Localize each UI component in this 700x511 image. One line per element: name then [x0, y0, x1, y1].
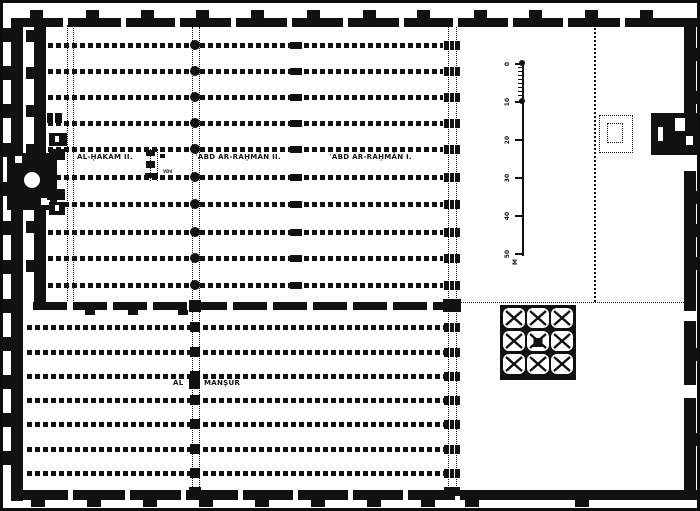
buttress [417, 10, 430, 18]
courtyard-fountain [500, 305, 576, 380]
pier-cluster [444, 372, 460, 381]
arcade-row [48, 256, 443, 261]
scale-bar-minor-tick [518, 67, 522, 68]
pier [189, 377, 200, 389]
door-gap [620, 18, 625, 27]
pier-cluster [444, 323, 460, 332]
arcade-row [48, 69, 443, 74]
buttress [585, 10, 598, 18]
pier [190, 280, 200, 290]
buttress [141, 10, 154, 18]
pier-cluster [444, 348, 460, 357]
buttress [465, 500, 479, 507]
door-gap [403, 490, 408, 500]
minaret-footprint-inner [607, 123, 623, 143]
pier-cluster [444, 420, 460, 429]
buttress [196, 10, 209, 18]
old-qibla-mark [290, 201, 302, 208]
gate-passage [675, 118, 685, 131]
scale-bar-minor-tick [518, 87, 522, 88]
buttress [86, 10, 99, 18]
door-gap [121, 18, 126, 27]
buttress [3, 66, 11, 80]
arcade-row [27, 447, 447, 452]
pier-cluster [444, 67, 460, 76]
scale-bar-label: 20 [504, 133, 512, 147]
door-gap [175, 18, 180, 27]
buttress [363, 10, 376, 18]
buttress [3, 413, 11, 427]
mihrab-niche [24, 172, 40, 188]
door-gap [399, 18, 404, 27]
gate-passage [658, 127, 663, 141]
door-gap [348, 490, 353, 500]
chamber-gap [55, 205, 59, 211]
buttress [696, 91, 700, 104]
wall-east [684, 171, 696, 311]
buttress [3, 451, 11, 465]
scale-bar-unit-label: M [512, 255, 520, 269]
scale-bar-label: 40 [504, 209, 512, 223]
pier [190, 419, 200, 429]
lantern-pier [146, 161, 155, 168]
scale-bar-dot [519, 60, 525, 66]
door-gap [125, 490, 130, 500]
old-qibla-mark [290, 94, 302, 101]
door-gap [231, 18, 236, 27]
pier [190, 118, 200, 128]
arcade-row [48, 175, 443, 180]
chamber-gap [55, 136, 59, 142]
pier-cluster [444, 228, 460, 237]
buttress [696, 257, 700, 270]
buttress [640, 10, 653, 18]
buttress [696, 191, 700, 204]
door-gap [238, 490, 243, 500]
buttress [696, 48, 700, 61]
pier [190, 395, 200, 405]
courtyard-boundary-dotted [458, 302, 696, 303]
label-al-hakam-ii: AL-ḤAKAM II. [77, 153, 133, 161]
buttress [696, 348, 700, 361]
buttress [421, 500, 435, 507]
scale-bar-label: 30 [504, 171, 512, 185]
lantern-pier [160, 154, 165, 158]
buttress [367, 500, 381, 507]
pier-junction [443, 299, 461, 312]
buttress [3, 375, 11, 389]
wall-mark [47, 113, 53, 123]
door-gap [181, 490, 186, 500]
label-al-mansur-part2: MANṢŪR [204, 379, 240, 387]
arcade-row [27, 325, 447, 330]
pier-cluster [444, 254, 460, 263]
wall-east [684, 18, 696, 113]
scale-bar-tick [515, 177, 523, 179]
arcade-row [27, 350, 447, 355]
old-qibla-mark [290, 68, 302, 75]
pier [190, 40, 200, 50]
buttress [3, 337, 11, 351]
wall-south [11, 490, 697, 500]
pier-cluster [444, 469, 460, 478]
door-gap [563, 18, 568, 27]
door-stub [128, 310, 138, 315]
pier [190, 172, 200, 182]
old-qibla-mark [290, 255, 302, 262]
buttress [26, 30, 34, 42]
arcade-row [27, 471, 447, 476]
pier [190, 199, 200, 209]
scale-bar-label: 0 [504, 57, 512, 71]
pier-cluster [444, 445, 460, 454]
pier-junction [189, 487, 201, 495]
door-gap [453, 18, 458, 27]
pier-junction [189, 300, 201, 312]
pier-cluster [444, 173, 460, 182]
courtyard-axis-dotted [594, 25, 596, 302]
label-al-mansur-part1: AL [173, 379, 183, 387]
floor-plan-figure: 01020304050M VDV AL-ḤAKAM II. ʿABD AR-RA… [0, 0, 700, 511]
wall-east [684, 321, 696, 385]
arcade-row [48, 43, 443, 48]
scale-bar-tick [515, 139, 523, 141]
buttress [307, 10, 320, 18]
scale-bar-minor-tick [518, 75, 522, 76]
scale-bar-minor-tick [518, 91, 522, 92]
buttress [87, 500, 101, 507]
arcade-row [48, 95, 443, 100]
pier [190, 66, 200, 76]
pier-cluster [444, 281, 460, 290]
wall-mark [55, 113, 62, 123]
label-abd-ar-rahman-i: ʿABD AR-RAḤMĀN I. [329, 153, 412, 161]
buttress [311, 500, 325, 507]
wall-west [11, 18, 23, 501]
buttress [3, 221, 11, 235]
buttress [26, 67, 34, 79]
fountain-drawing [500, 305, 576, 380]
arcade-row [48, 121, 443, 126]
phase-line-dotted [73, 25, 74, 301]
door-gap [343, 18, 348, 27]
buttress [575, 500, 589, 507]
treasury-chamber [47, 189, 65, 200]
pier [190, 253, 200, 263]
label-abd-ar-rahman-ii: ʿABD AR-RAḤMĀN II. [195, 153, 281, 161]
pier-junction [444, 487, 460, 496]
treasury-chamber [49, 149, 65, 160]
pier-cluster [444, 200, 460, 209]
pier [190, 227, 200, 237]
pier [190, 468, 200, 478]
pier-cluster [444, 145, 460, 154]
buttress [143, 500, 157, 507]
arcade-row [48, 202, 443, 207]
lantern-pier [146, 150, 155, 156]
wall-east [684, 398, 696, 490]
gate-passage [686, 136, 693, 145]
buttress [251, 10, 264, 18]
door-gap [293, 490, 298, 500]
buttress [26, 221, 34, 233]
old-qibla-mark [290, 282, 302, 289]
buttress [31, 500, 45, 507]
scale-bar-tick [515, 215, 523, 217]
old-qibla-mark [290, 42, 302, 49]
pier [190, 92, 200, 102]
pier-cluster [444, 396, 460, 405]
plan-geometry: 01020304050M [3, 3, 700, 511]
buttress [30, 10, 43, 18]
lantern-pier [145, 173, 158, 178]
buttress [529, 10, 542, 18]
old-qibla-mark [290, 146, 302, 153]
scale-bar-label: 50 [504, 247, 512, 261]
lantern-mark-label: VDV [163, 169, 173, 174]
arcade-row [48, 230, 443, 235]
scale-bar-dot [519, 98, 525, 104]
pier [190, 347, 200, 357]
door-gap [287, 18, 292, 27]
buttress [3, 299, 11, 313]
pier [190, 322, 200, 332]
scale-bar-minor-tick [518, 83, 522, 84]
old-qibla-mark [290, 120, 302, 127]
buttress [3, 260, 11, 274]
buttress [3, 28, 11, 42]
buttress [199, 500, 213, 507]
arcade-row [48, 147, 443, 152]
buttress [696, 433, 700, 446]
buttress [474, 10, 487, 18]
arcade-row [27, 398, 447, 403]
buttress [3, 104, 11, 118]
scale-bar-minor-tick [518, 95, 522, 96]
scale-bar-minor-tick [518, 79, 522, 80]
arcade-row [48, 283, 443, 288]
scale-bar-minor-tick [518, 71, 522, 72]
buttress [26, 260, 34, 272]
mihrab-notch [15, 156, 22, 163]
scale-bar-label: 10 [504, 95, 512, 109]
door-stub [85, 310, 95, 315]
door-stub [178, 310, 188, 315]
buttress [696, 224, 700, 237]
scale-bar-line [522, 63, 524, 256]
buttress [26, 105, 34, 117]
door-gap [68, 490, 73, 500]
phase-line-dotted [67, 25, 68, 301]
pier [190, 444, 200, 454]
buttress [255, 500, 269, 507]
door-gap [508, 18, 513, 27]
old-qibla-mark [290, 229, 302, 236]
pier-cluster [444, 93, 460, 102]
arcade-row [27, 422, 447, 427]
phase-boundary-wall [33, 302, 458, 310]
pier-cluster [444, 119, 460, 128]
pier-cluster [444, 41, 460, 50]
old-qibla-mark [290, 174, 302, 181]
